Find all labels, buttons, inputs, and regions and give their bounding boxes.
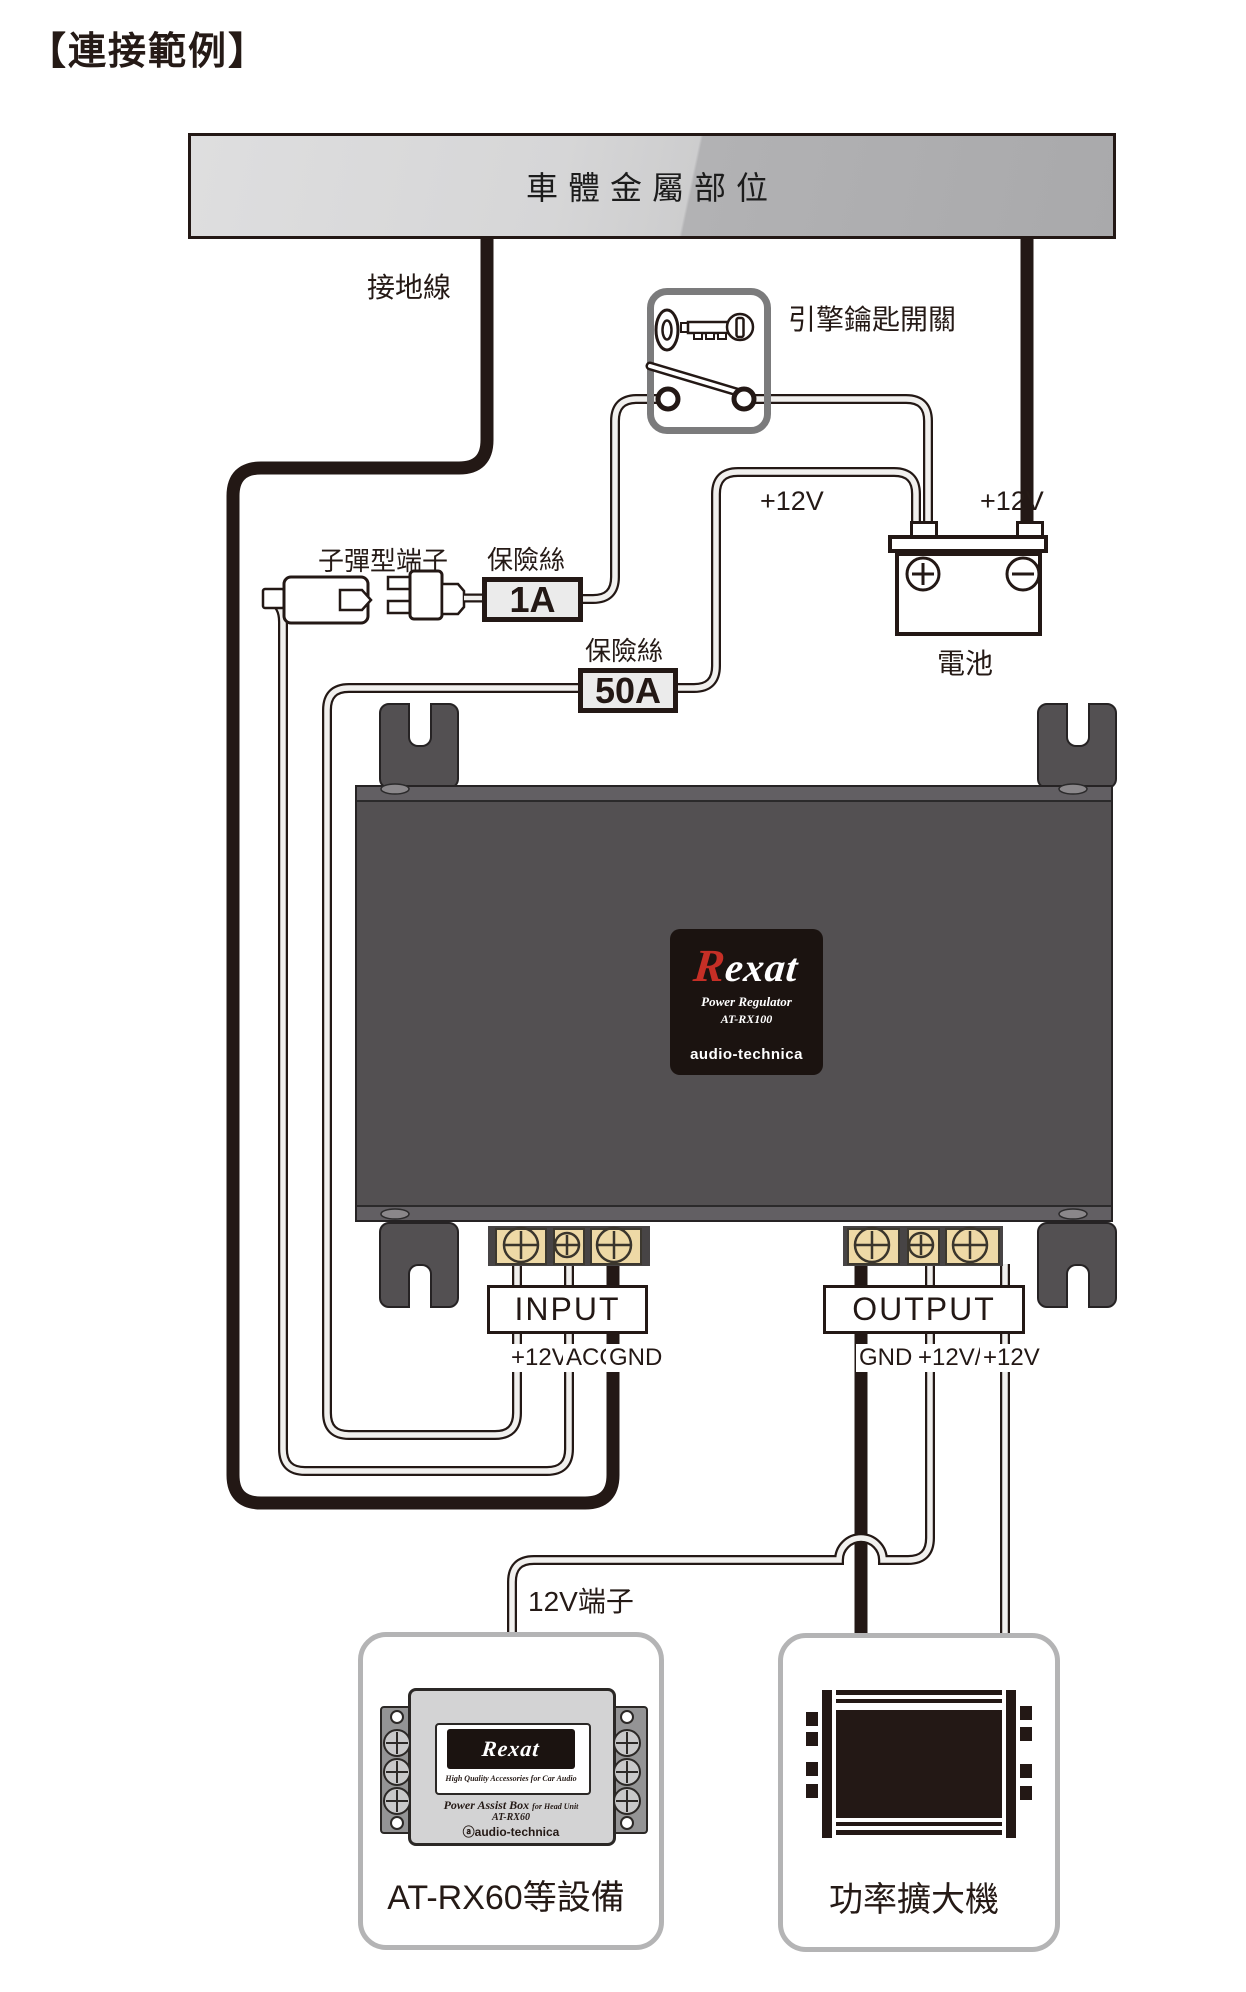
unit-corner-screw [381, 784, 1087, 1219]
keyhole-icon [656, 310, 678, 350]
battery-minus-icon [1007, 558, 1039, 590]
switch-contact-right [734, 389, 754, 409]
rx60-flange-screws [384, 1711, 640, 1829]
screw-icon [855, 1228, 987, 1262]
connection-example-diagram: 【連接範例】 車體金屬部位 接地線 引擎鑰匙開關 子彈型端子 保險絲 保險絲 +… [0, 0, 1246, 1992]
screw-icon [504, 1228, 631, 1262]
switch-contact-left [658, 389, 678, 409]
bullet-terminal-icon [263, 571, 482, 623]
key-icon [681, 314, 753, 340]
icon-layer [0, 0, 1246, 1992]
battery-plus-icon [907, 558, 939, 590]
